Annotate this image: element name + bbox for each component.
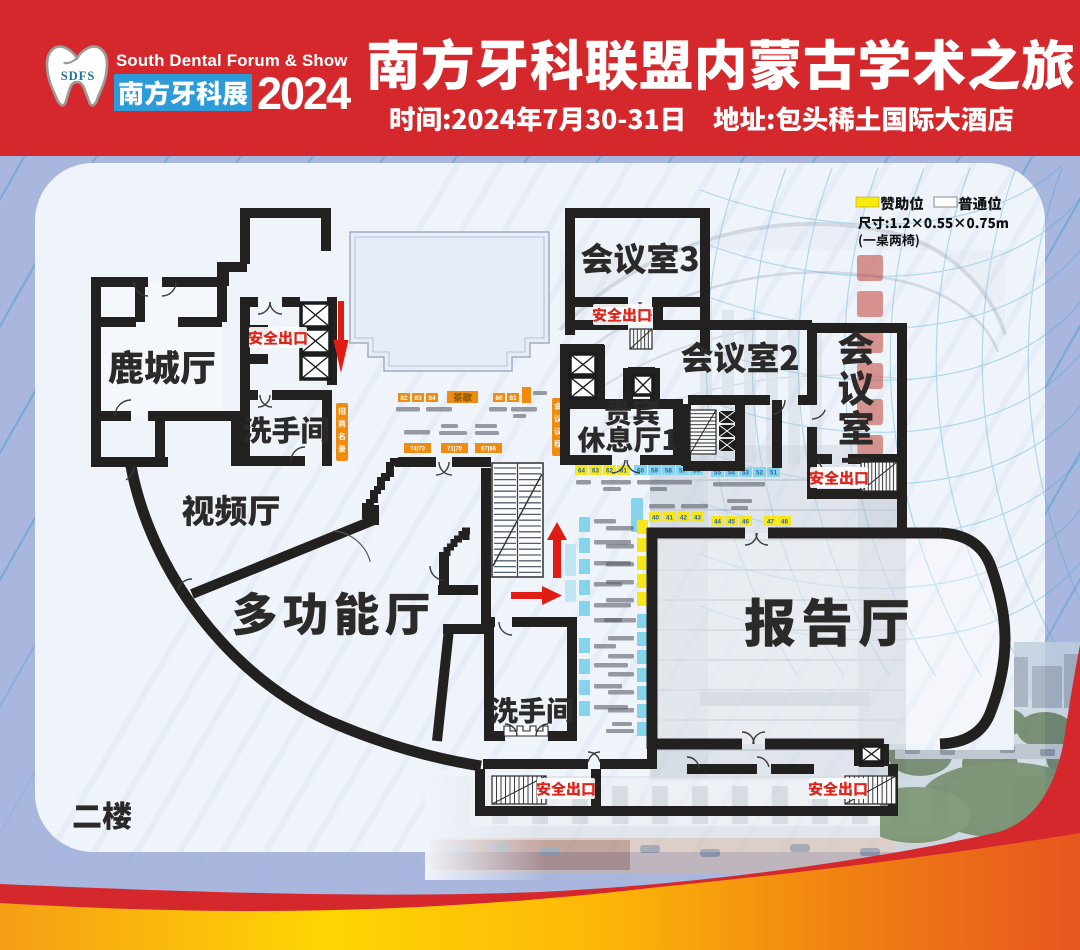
svg-text:40: 40 bbox=[652, 514, 659, 521]
svg-text:82: 82 bbox=[400, 395, 408, 402]
svg-text:67|66: 67|66 bbox=[481, 446, 497, 452]
svg-text:80: 80 bbox=[495, 395, 503, 402]
svg-text:44: 44 bbox=[714, 518, 721, 525]
svg-text:74|73: 74|73 bbox=[410, 446, 426, 452]
svg-text:52: 52 bbox=[756, 469, 763, 476]
svg-text:83: 83 bbox=[414, 395, 422, 402]
svg-text:41: 41 bbox=[666, 514, 673, 521]
svg-text:51: 51 bbox=[770, 469, 777, 476]
svg-text:64: 64 bbox=[578, 467, 585, 474]
svg-text:43: 43 bbox=[694, 514, 701, 521]
svg-text:84: 84 bbox=[428, 395, 436, 402]
svg-text:SDFS: SDFS bbox=[61, 69, 96, 83]
svg-text:2024: 2024 bbox=[257, 68, 351, 119]
svg-text:42: 42 bbox=[680, 514, 687, 521]
svg-text:58: 58 bbox=[665, 467, 672, 474]
svg-text:81: 81 bbox=[509, 395, 517, 402]
svg-text:48: 48 bbox=[781, 518, 788, 525]
svg-text:47: 47 bbox=[767, 518, 774, 525]
svg-text:45: 45 bbox=[728, 518, 735, 525]
svg-text:46: 46 bbox=[742, 518, 749, 525]
svg-text:71|70: 71|70 bbox=[447, 446, 463, 452]
svg-text:59: 59 bbox=[651, 467, 658, 474]
svg-text:63: 63 bbox=[592, 467, 599, 474]
